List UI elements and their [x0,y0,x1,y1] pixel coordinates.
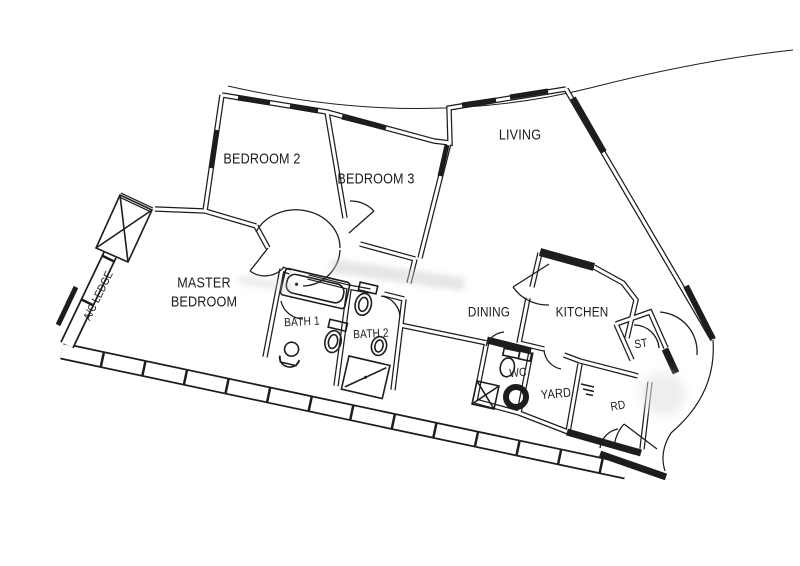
room-label-living: LIVING [499,127,541,146]
room-label-bedroom-3: BEDROOM 3 [337,171,414,190]
room-label-kitchen: KITCHEN [556,303,609,321]
room-label-bath-2: BATH 2 [353,326,389,343]
floor-plan: BEDROOM 2BEDROOM 3LIVINGMASTER BEDROOMA/… [0,0,800,566]
room-label-wc: WC [509,365,527,381]
room-label-bath-1: BATH 1 [284,314,320,331]
room-label-master-bedroom: MASTER BEDROOM [171,274,237,312]
room-labels: BEDROOM 2BEDROOM 3LIVINGMASTER BEDROOMA/… [0,0,800,566]
room-label-ac-ledge: A/C LEDGE [81,269,117,323]
room-label-yard: YARD [540,385,572,404]
room-label-dining: DINING [468,303,510,321]
room-label-st: ST [633,336,648,353]
room-label-shelter: RD [609,397,626,414]
room-label-bedroom-2: BEDROOM 2 [223,151,300,170]
